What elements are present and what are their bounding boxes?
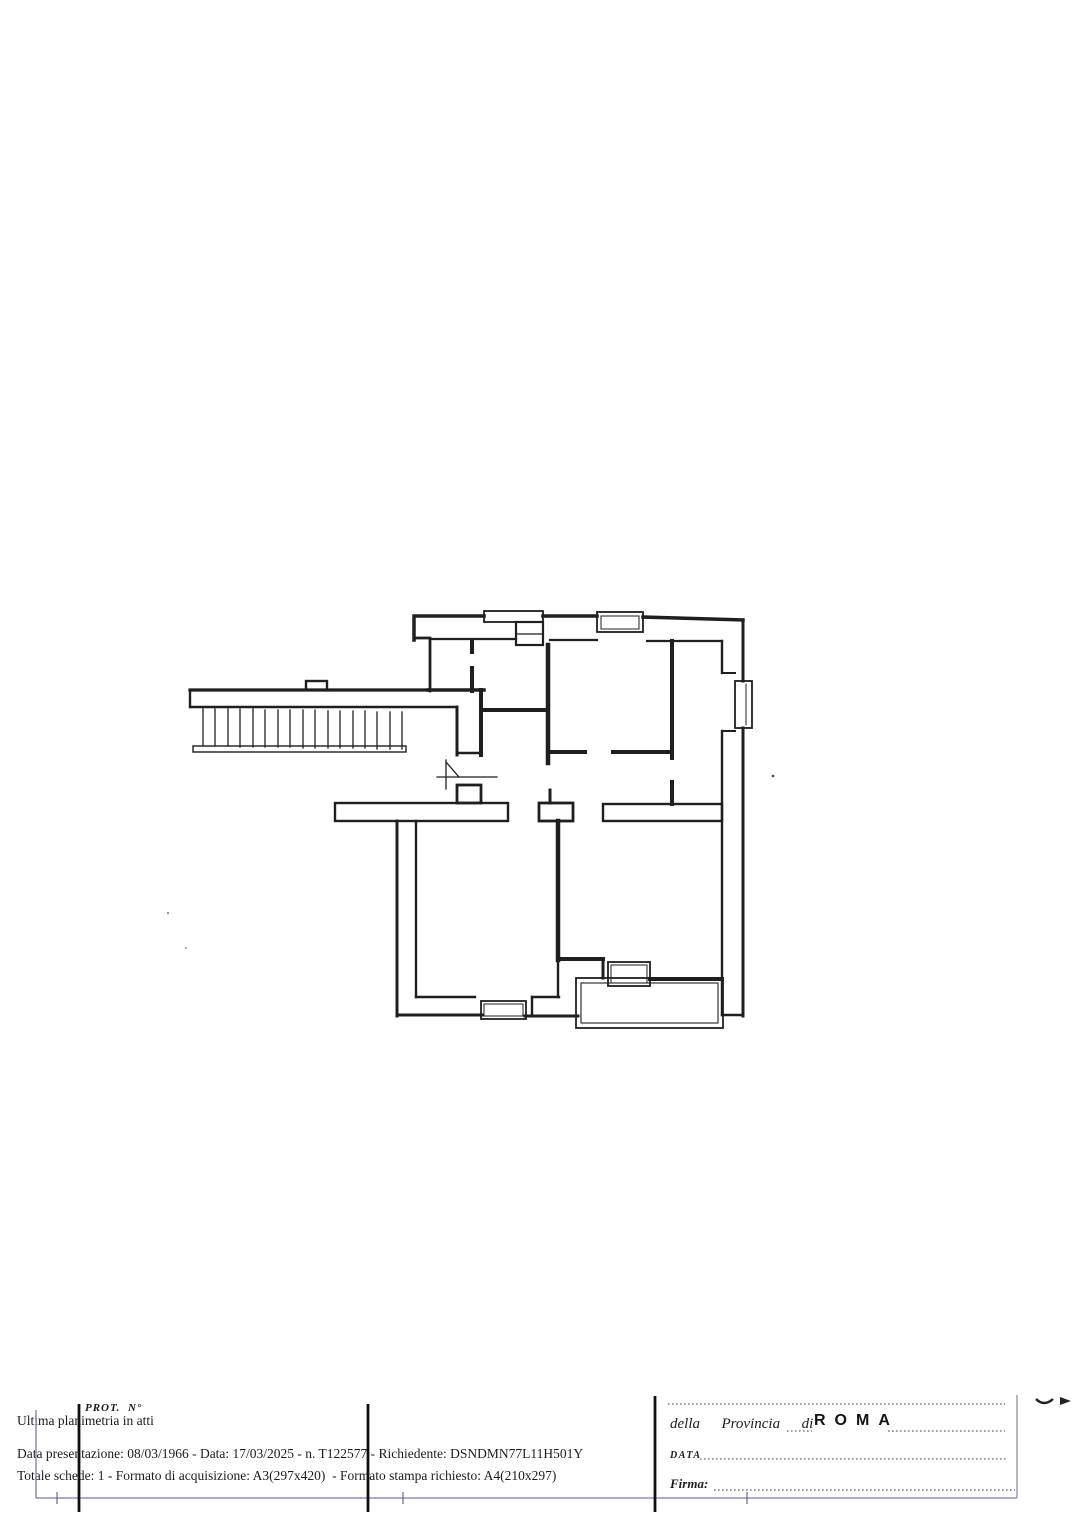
format-data-line: Totale schede: 1 - Formato di acquisizio… xyxy=(17,1468,556,1484)
corridor-walls xyxy=(335,803,722,821)
interior-walls-bottom-right-room xyxy=(558,821,722,979)
window-right-bay xyxy=(735,681,752,728)
scanned-cadastral-plan-page: PROT. N° Ultima planimetria in atti Data… xyxy=(0,0,1086,1535)
registration-ticks xyxy=(57,1492,747,1504)
staircase xyxy=(190,681,457,752)
provincia-value: ROMA xyxy=(814,1412,899,1430)
entrance-pillar xyxy=(457,785,481,803)
entrance-walls xyxy=(457,690,481,803)
scan-artifact-marks xyxy=(167,775,775,949)
floor-plan xyxy=(0,0,1086,1535)
firma-field-label: Firma: xyxy=(670,1477,708,1492)
flue-box xyxy=(539,803,573,821)
provincia-label: della Provincia di xyxy=(670,1416,813,1433)
windows xyxy=(481,611,752,1019)
terrace-window xyxy=(608,962,650,986)
ultima-planimetria-line: Ultima planimetria in atti xyxy=(17,1413,154,1429)
outer-walls xyxy=(414,616,743,1016)
presentation-data-line: Data presentazione: 08/03/1966 - Data: 1… xyxy=(17,1446,583,1462)
window-top-center xyxy=(597,612,643,632)
interior-walls-center xyxy=(481,641,672,821)
window-top-left xyxy=(484,611,543,622)
interior-walls-top-left-room xyxy=(428,641,484,691)
vestibule-box xyxy=(516,622,543,645)
terrace xyxy=(576,978,723,1028)
stair-treads xyxy=(203,709,402,749)
floor-plan-walls xyxy=(190,611,752,1028)
stair-bottom-rail xyxy=(193,746,406,752)
cutoff-marks xyxy=(1036,1397,1071,1405)
stair-wall-pilaster xyxy=(306,681,327,690)
window-bottom xyxy=(481,1001,526,1019)
entrance-door-arrow xyxy=(437,760,497,789)
interior-walls-bottom-left-room xyxy=(397,821,578,1016)
data-field-label: DATA xyxy=(670,1450,702,1462)
